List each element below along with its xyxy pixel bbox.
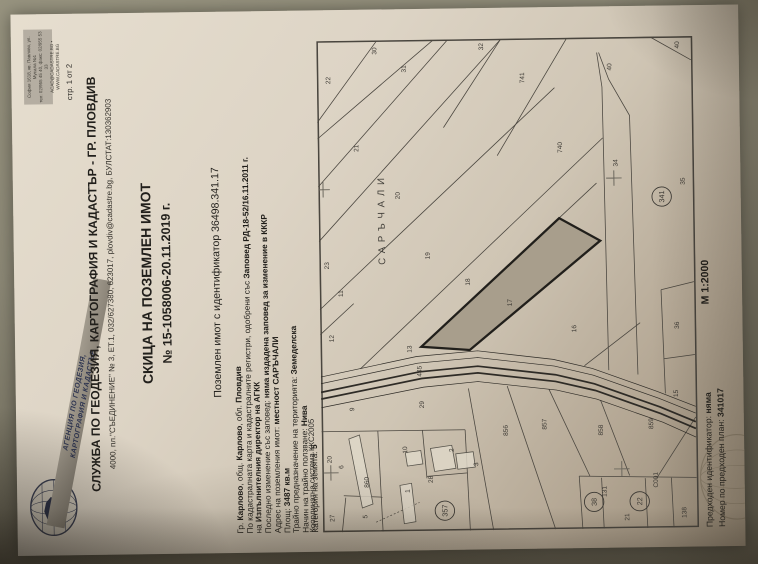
photo-background: АГЕНЦИЯ ПО ГЕОДЕЗИЯ, КАРТОГРАФИЯ И КАДАС… (0, 0, 758, 564)
prev-plan-label: Номер по предходен план: (716, 417, 727, 527)
hq-address-box: София 1618, кв. Павлово, ул. Мусала №1 т… (23, 29, 53, 104)
parcel-number-label: 15 (673, 389, 680, 397)
page-number: стр. 1 от 2 (65, 64, 74, 100)
parcel-number-label: 16 (571, 325, 578, 333)
cadastral-map: САРЪЧАЛИ 2230313221201918171615231112134… (316, 36, 699, 533)
map-scale: М 1:2000 (699, 260, 711, 305)
parcel-number-label: С001 (653, 472, 660, 488)
hq-address-line3: ACAD@CADASTRE.BG • WWW.CADASTRE.BG (49, 29, 61, 104)
parcel-number-label: 131 (602, 486, 609, 497)
coord-system-note: Координатна система ККС2005 (307, 419, 317, 533)
parcel-number-label: 859 (648, 418, 655, 429)
parcel-number-label: 740 (557, 142, 564, 153)
circled-region-number-text: 357 (440, 505, 449, 517)
parcel-number-label: 10 (402, 446, 409, 454)
parcel-number-label: 5 (362, 514, 369, 518)
sketch-number: № 15-1058006-20.11.2019 г. (155, 12, 177, 554)
parcel-number-label: 35 (680, 177, 687, 185)
parcel-number-label: 22 (325, 76, 332, 84)
parcel-number-label: 6 (338, 465, 345, 469)
parcel-number-label: 23 (324, 262, 331, 270)
parcel-number-label: 9 (349, 407, 356, 411)
circled-region-number-text: 22 (635, 497, 644, 505)
parcel-number-label: 27 (329, 514, 336, 522)
parcel-number-label: 858 (598, 424, 605, 435)
parcel-number-label: 28 (428, 475, 435, 483)
parcel-number-label: 40 (606, 63, 613, 71)
parcel-number-label: 40 (674, 41, 681, 49)
paper-document: АГЕНЦИЯ ПО ГЕОДЕЗИЯ, КАРТОГРАФИЯ И КАДАС… (10, 4, 745, 556)
parcel-number-label: 21 (353, 144, 360, 152)
parcel-number-label: 2 (449, 448, 456, 452)
parcel-number-label: 18 (465, 278, 472, 286)
prev-id-value: няма (703, 392, 713, 413)
parcel-number-label: 21 (624, 513, 631, 521)
parcel-number-label: 32 (478, 43, 485, 51)
footer-prev-plan: Номер по предходен план: 341017 (716, 388, 728, 527)
parcel-number-label: 17 (507, 299, 514, 307)
circled-region-number-text: 341 (657, 191, 666, 203)
parcel-number-label: 3 (473, 462, 480, 466)
parcel-number-label: 36 (674, 321, 681, 329)
parcel-number-label: 30 (371, 47, 378, 55)
parcel-number-label: 29 (419, 401, 426, 409)
prev-id-label: Предходен идентификатор: (703, 414, 714, 528)
locality-label: САРЪЧАЛИ (376, 173, 388, 265)
parcel-number-label: 11 (338, 290, 345, 297)
parcel-number-label: 13 (407, 345, 414, 353)
parcel-number-label: 857 (541, 418, 548, 429)
prev-plan-value: 341017 (716, 388, 726, 417)
parcel-number-label: 20 (395, 192, 402, 200)
parcel-number-label: 19 (425, 252, 432, 260)
parcel-number-label: 860 (364, 476, 371, 487)
parcel-number-label: 445 (417, 365, 424, 376)
parcel-number-label: 20 (327, 456, 334, 464)
parcel-number-label: 856 (503, 425, 510, 436)
parcel-number-label: 1 (405, 489, 412, 493)
parcel-number-label: 12 (329, 335, 336, 343)
parcel-number-label: 34 (612, 159, 619, 167)
footer-prev-id: Предходен идентификатор: няма (703, 392, 714, 527)
circled-region-number-text: 38 (590, 498, 599, 506)
parcel-number-label: 31 (401, 65, 408, 73)
parcel-identifier: Поземлен имот с идентификатор 36498.341.… (207, 12, 226, 554)
parcel-number-label: 741 (519, 72, 526, 83)
